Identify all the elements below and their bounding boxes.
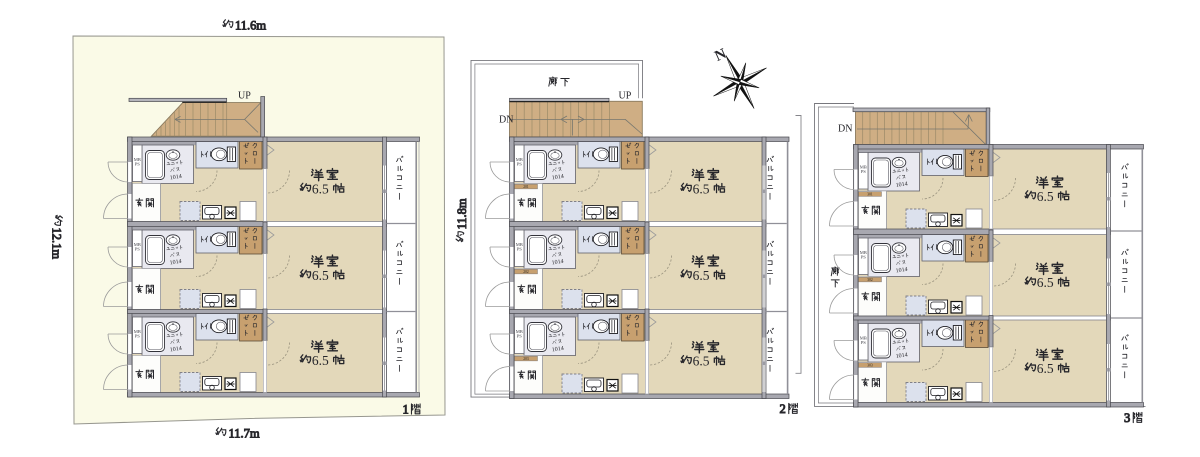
svg-text:6.5: 6.5 [312,268,329,283]
svg-text:MBPS: MBPS [516,157,523,167]
svg-text:302: 302 [867,278,873,282]
svg-text:DN: DN [838,124,852,135]
svg-text:UP: UP [238,91,251,102]
svg-text:MBPS: MBPS [134,157,141,167]
svg-text:6.5: 6.5 [312,353,329,368]
svg-text:MBPS: MBPS [134,242,141,252]
svg-text:MBPS: MBPS [860,250,867,260]
svg-text:301: 301 [867,193,873,197]
svg-text:MBPS: MBPS [860,336,867,346]
svg-text:6.5: 6.5 [1037,361,1054,376]
svg-text:MBPS: MBPS [516,329,523,339]
svg-text:11.6m: 11.6m [235,19,266,33]
svg-text:1: 1 [403,402,409,416]
svg-text:DN: DN [499,115,513,126]
svg-text:UP: UP [619,91,632,102]
svg-text:11.7m: 11.7m [229,427,260,441]
svg-text:203: 203 [523,357,529,361]
svg-text:6.5: 6.5 [312,181,329,196]
svg-text:MBPS: MBPS [860,165,867,175]
svg-text:202: 202 [523,270,529,274]
svg-text:12.1m: 12.1m [50,228,64,260]
svg-text:MBPS: MBPS [516,242,523,252]
svg-text:6.5: 6.5 [1037,189,1054,204]
svg-text:6.5: 6.5 [693,181,710,196]
svg-text:11.8m: 11.8m [455,198,469,229]
svg-text:201: 201 [523,185,529,189]
svg-text:2: 2 [780,402,786,416]
svg-text:6.5: 6.5 [1037,275,1054,290]
svg-text:3: 3 [1124,411,1130,425]
svg-text:303: 303 [867,364,873,368]
svg-text:MBPS: MBPS [134,329,141,339]
svg-text:6.5: 6.5 [693,268,710,283]
svg-text:6.5: 6.5 [693,354,710,369]
